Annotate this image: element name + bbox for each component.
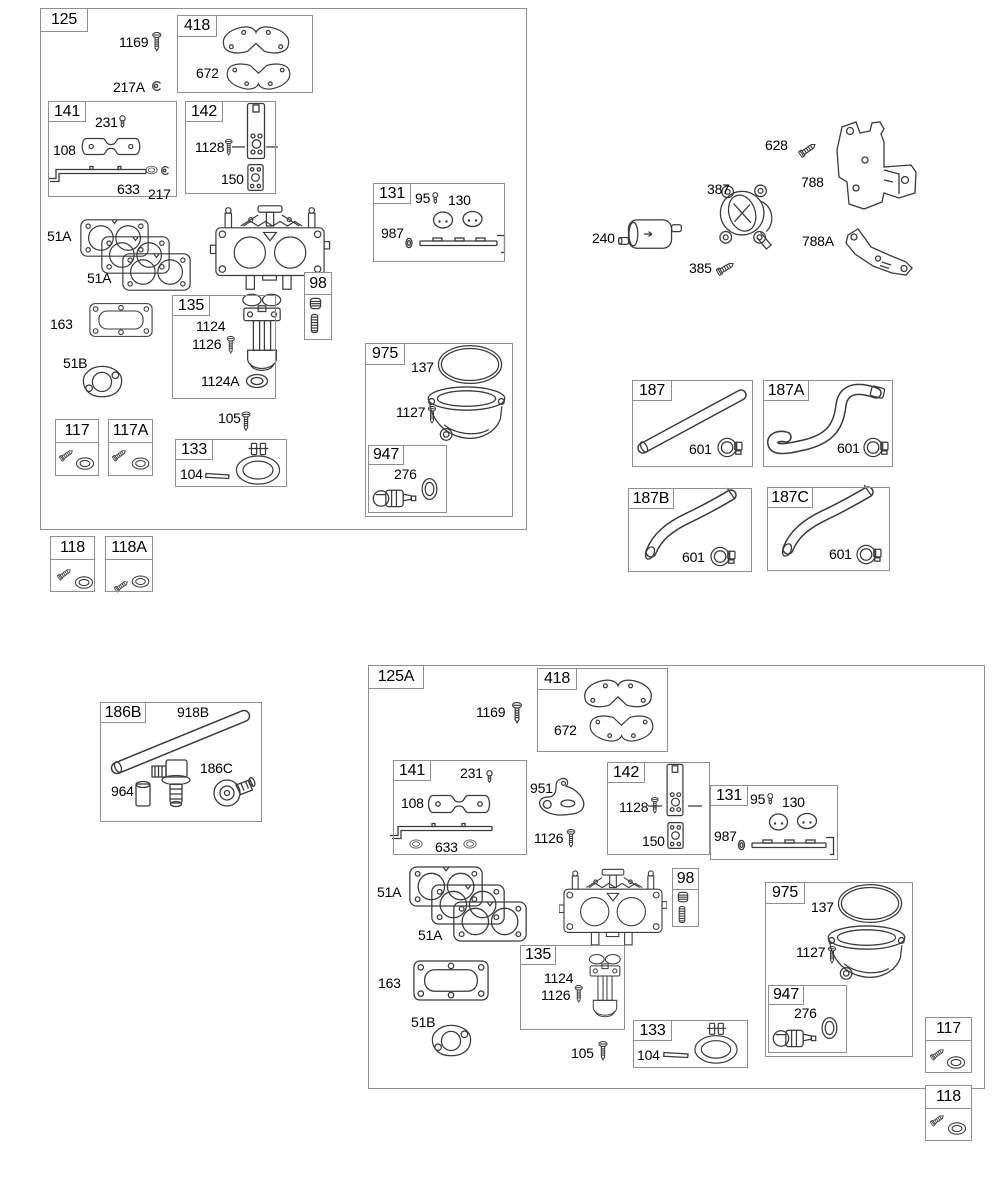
group-box-117A-top: 117A bbox=[108, 419, 153, 476]
part-label-1127: 1127 bbox=[396, 405, 425, 420]
part-label-150: 150 bbox=[221, 172, 244, 187]
group-box-187A: 187A bbox=[763, 380, 893, 467]
part-label-231: 231 bbox=[460, 766, 483, 781]
group-tag-98-top: 98 bbox=[304, 272, 332, 295]
part-label-385: 385 bbox=[689, 261, 712, 276]
bracket-788a-drawing bbox=[846, 229, 912, 275]
part-label-788A: 788A bbox=[802, 234, 834, 249]
part-label-1169: 1169 bbox=[119, 35, 148, 50]
group-tag-117-top: 117 bbox=[55, 419, 99, 443]
part-label-1128: 1128 bbox=[619, 800, 648, 815]
part-label-217: 217 bbox=[148, 187, 171, 202]
part-label-105: 105 bbox=[218, 411, 241, 426]
part-label-108: 108 bbox=[401, 796, 424, 811]
screw-385-drawing bbox=[716, 261, 735, 276]
group-tag-125A: 125A bbox=[368, 665, 424, 689]
part-label-1124: 1124 bbox=[196, 319, 225, 334]
part-label-51B: 51B bbox=[63, 356, 87, 371]
part-label-130: 130 bbox=[782, 795, 805, 810]
part-label-137: 137 bbox=[811, 900, 834, 915]
screw-628-drawing bbox=[798, 142, 816, 158]
group-tag-141-bottom: 141 bbox=[393, 760, 431, 781]
group-tag-975-top: 975 bbox=[365, 343, 405, 365]
group-box-418-bottom: 418 bbox=[537, 668, 668, 752]
group-tag-118A-left: 118A bbox=[105, 536, 153, 560]
group-tag-142-top: 142 bbox=[185, 101, 223, 122]
group-tag-187A: 187A bbox=[763, 380, 809, 401]
group-tag-186B: 186B bbox=[100, 702, 146, 723]
group-tag-418-top: 418 bbox=[177, 15, 217, 37]
part-label-1124A: 1124A bbox=[201, 374, 239, 389]
part-label-186C: 186C bbox=[200, 761, 233, 776]
group-tag-187B: 187B bbox=[628, 488, 674, 509]
part-label-105: 105 bbox=[571, 1046, 594, 1061]
group-tag-98-bottom: 98 bbox=[672, 868, 699, 890]
group-tag-131-top: 131 bbox=[373, 183, 411, 204]
part-label-1126: 1126 bbox=[541, 988, 570, 1003]
part-label-150: 150 bbox=[642, 834, 665, 849]
part-label-95: 95 bbox=[415, 191, 430, 206]
part-label-51A: 51A bbox=[47, 229, 71, 244]
part-label-628: 628 bbox=[765, 138, 788, 153]
group-tag-187C: 187C bbox=[767, 487, 813, 508]
part-label-137: 137 bbox=[411, 360, 434, 375]
group-tag-135-top: 135 bbox=[172, 295, 210, 316]
group-box-131-top: 131 bbox=[373, 183, 505, 262]
part-label-217A: 217A bbox=[113, 80, 145, 95]
part-label-51A: 51A bbox=[87, 271, 111, 286]
group-box-117-bottom: 117 bbox=[925, 1017, 972, 1073]
part-label-130: 130 bbox=[448, 193, 471, 208]
part-label-276: 276 bbox=[394, 467, 417, 482]
part-label-104: 104 bbox=[180, 467, 203, 482]
group-tag-118-bottom: 118 bbox=[925, 1085, 972, 1109]
part-label-51B: 51B bbox=[411, 1015, 435, 1030]
part-label-964: 964 bbox=[111, 784, 134, 799]
part-label-1127: 1127 bbox=[796, 945, 825, 960]
group-box-118-bottom: 118 bbox=[925, 1085, 972, 1141]
part-label-601: 601 bbox=[829, 547, 852, 562]
part-label-95: 95 bbox=[750, 792, 765, 807]
group-tag-118-left: 118 bbox=[50, 536, 95, 560]
group-tag-947-bottom: 947 bbox=[768, 985, 804, 1005]
part-label-672: 672 bbox=[196, 66, 219, 81]
group-tag-125: 125 bbox=[40, 8, 88, 32]
part-label-1126: 1126 bbox=[192, 337, 221, 352]
part-label-672: 672 bbox=[554, 723, 577, 738]
part-label-51A: 51A bbox=[418, 928, 442, 943]
part-label-601: 601 bbox=[689, 442, 712, 457]
part-label-788: 788 bbox=[801, 175, 824, 190]
part-label-987: 987 bbox=[714, 829, 737, 844]
part-label-231: 231 bbox=[95, 115, 118, 130]
part-label-104: 104 bbox=[637, 1048, 660, 1063]
part-label-633: 633 bbox=[117, 182, 140, 197]
fuel-filter-240-drawing bbox=[618, 220, 681, 248]
group-tag-131-bottom: 131 bbox=[710, 785, 748, 806]
part-label-163: 163 bbox=[50, 317, 73, 332]
part-label-1169: 1169 bbox=[476, 705, 505, 720]
part-label-987: 987 bbox=[381, 226, 404, 241]
part-label-918B: 918B bbox=[177, 705, 209, 720]
group-box-117-top: 117 bbox=[55, 419, 99, 476]
bracket-788-drawing bbox=[837, 122, 916, 209]
part-label-276: 276 bbox=[794, 1006, 817, 1021]
part-label-163: 163 bbox=[378, 976, 401, 991]
part-label-387: 387 bbox=[707, 182, 730, 197]
group-box-118A-left: 118A bbox=[105, 536, 153, 592]
group-tag-135-bottom: 135 bbox=[520, 945, 556, 965]
group-box-98-top: 98 bbox=[304, 272, 332, 340]
group-tag-117A-top: 117A bbox=[108, 419, 153, 443]
part-label-240: 240 bbox=[592, 231, 615, 246]
parts-diagram-canvas: 12541814114213198135975947117117A1331181… bbox=[0, 0, 1005, 1200]
group-tag-975-bottom: 975 bbox=[765, 882, 805, 904]
part-label-108: 108 bbox=[53, 143, 76, 158]
group-tag-133-top: 133 bbox=[175, 439, 213, 460]
part-label-633: 633 bbox=[435, 840, 458, 855]
group-tag-187: 187 bbox=[632, 380, 672, 401]
group-box-118-left: 118 bbox=[50, 536, 95, 592]
part-label-51A: 51A bbox=[377, 885, 401, 900]
part-label-1126: 1126 bbox=[534, 831, 563, 846]
part-label-951: 951 bbox=[530, 781, 553, 796]
group-tag-142-bottom: 142 bbox=[607, 762, 645, 783]
group-box-131-bottom: 131 bbox=[710, 785, 838, 860]
group-tag-947-top: 947 bbox=[368, 445, 404, 465]
part-label-601: 601 bbox=[837, 441, 860, 456]
part-label-601: 601 bbox=[682, 550, 705, 565]
group-box-135-bottom: 135 bbox=[520, 945, 625, 1030]
group-tag-133-bottom: 133 bbox=[633, 1020, 672, 1041]
part-label-1124: 1124 bbox=[544, 971, 573, 986]
group-tag-141-top: 141 bbox=[48, 101, 86, 122]
group-box-98-bottom: 98 bbox=[672, 868, 699, 927]
group-tag-117-bottom: 117 bbox=[925, 1017, 972, 1041]
group-tag-418-bottom: 418 bbox=[537, 668, 577, 690]
part-label-1128: 1128 bbox=[195, 140, 224, 155]
